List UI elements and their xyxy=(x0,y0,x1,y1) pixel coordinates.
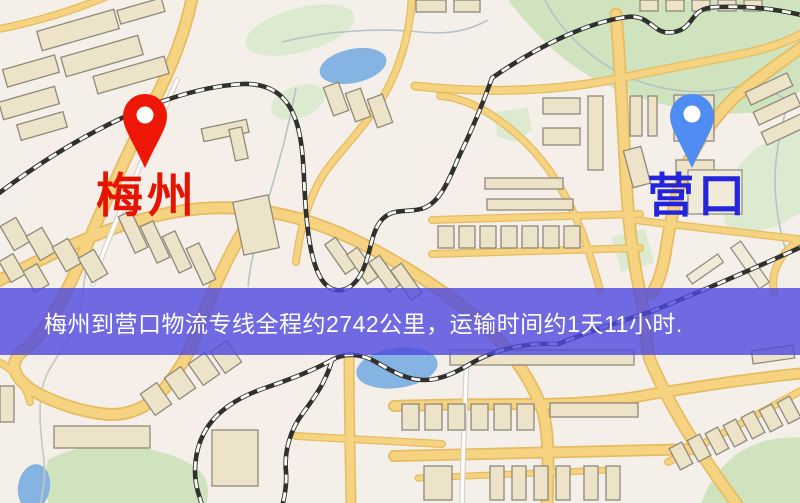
destination-pin-hole xyxy=(684,106,701,123)
origin-pin-icon[interactable] xyxy=(117,92,173,172)
origin-pin-shape xyxy=(123,94,167,168)
origin-city-label: 梅州 xyxy=(82,172,212,222)
route-info-banner: 梅州到营口物流专线全程约2742公里，运输时间约1天11小时. xyxy=(0,288,800,355)
map-image xyxy=(0,0,800,503)
origin-pin-hole xyxy=(137,107,154,124)
destination-pin-shape xyxy=(670,94,714,168)
route-info-text: 梅州到营口物流专线全程约2742公里，运输时间约1天11小时. xyxy=(0,305,683,339)
logistics-route-map: 梅州 营口 梅州到营口物流专线全程约2742公里，运输时间约1天11小时. xyxy=(0,0,800,503)
destination-city-label: 营口 xyxy=(633,172,763,222)
destination-pin-icon[interactable] xyxy=(664,92,720,172)
